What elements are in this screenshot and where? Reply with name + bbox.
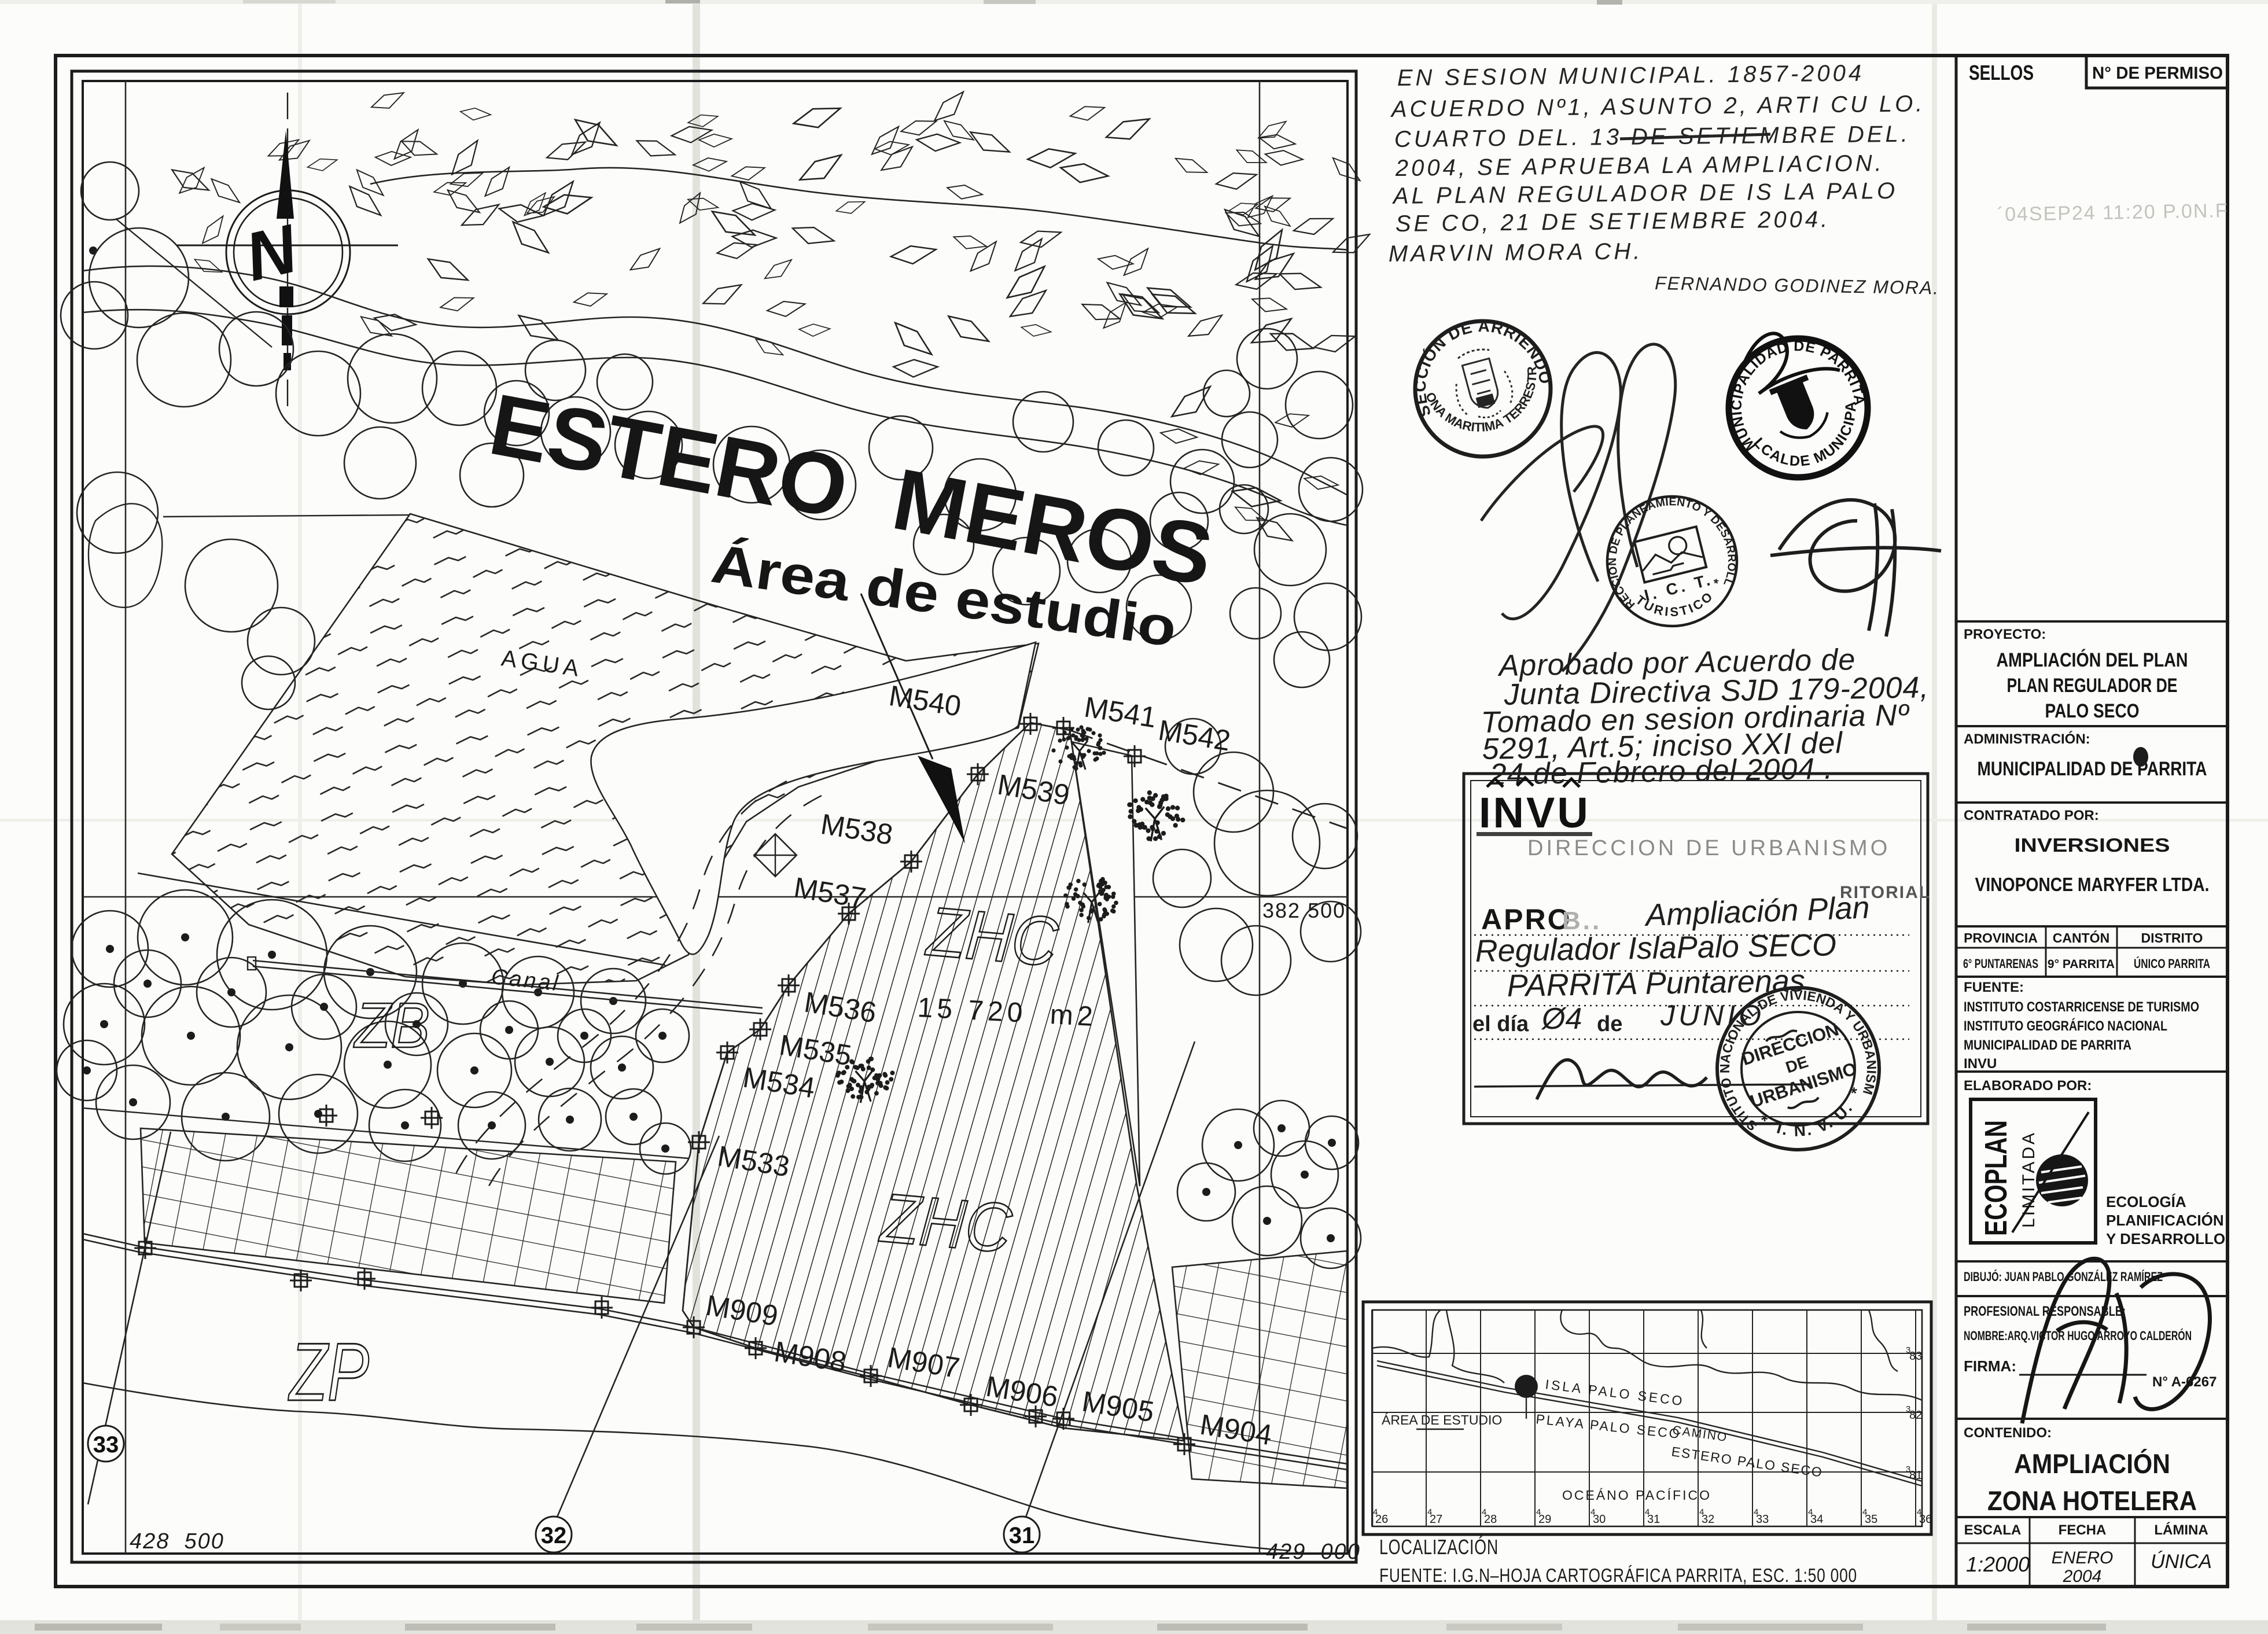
svg-text:ENERO: ENERO [2052, 1548, 2114, 1567]
svg-text:DIRECCION DE URBANISMO: DIRECCION DE URBANISMO [1527, 836, 1890, 860]
svg-text:ZHC: ZHC [923, 892, 1062, 981]
svg-text:FECHA: FECHA [2059, 1522, 2107, 1538]
svg-text:ADMINISTRACIÓN:: ADMINISTRACIÓN: [1964, 731, 2090, 747]
svg-text:AMPLIACIÓN: AMPLIACIÓN [2014, 1448, 2170, 1479]
svg-text:ZONA HOTELERA: ZONA HOTELERA [1987, 1485, 2197, 1516]
svg-text:AL PLAN REGULADOR DE IS LA PAL: AL PLAN REGULADOR DE IS LA PALO [1392, 178, 1898, 209]
svg-text:ÚNICO PARRITA: ÚNICO PARRITA [2134, 956, 2210, 971]
svg-text:428 500: 428 500 [130, 1529, 224, 1554]
svg-text:31: 31 [1009, 1523, 1035, 1548]
svg-text:4: 4 [1754, 1507, 1758, 1517]
svg-text:INSTITUTO COSTARRICENSE DE TUR: INSTITUTO COSTARRICENSE DE TURISMO [1964, 999, 2199, 1015]
svg-text:ZB: ZB [353, 990, 430, 1061]
svg-text:MUNICIPALIDAD DE PARRITA: MUNICIPALIDAD DE PARRITA [1978, 758, 2207, 780]
svg-text:3: 3 [1906, 1464, 1910, 1474]
svg-text:´04SEP24 11:20 P.0N.F: ´04SEP24 11:20 P.0N.F [1997, 200, 2228, 226]
svg-text:24 de Febrero del 2004 .: 24 de Febrero del 2004 . [1489, 752, 1833, 792]
svg-text:4: 4 [1482, 1507, 1486, 1517]
svg-text:3: 3 [1906, 1345, 1910, 1355]
svg-text:de: de [1597, 1012, 1622, 1036]
svg-text:82: 82 [1909, 1409, 1922, 1422]
svg-text:4: 4 [1917, 1507, 1921, 1517]
svg-text:LOCALIZACIÓN: LOCALIZACIÓN [1379, 1535, 1499, 1559]
svg-text:ZHC: ZHC [877, 1179, 1015, 1267]
svg-text:4: 4 [1590, 1507, 1595, 1517]
svg-text:9° PARRITA: 9° PARRITA [2048, 958, 2115, 971]
svg-text:4: 4 [1862, 1507, 1867, 1517]
svg-text:Y DESARROLLO: Y DESARROLLO [2106, 1230, 2225, 1247]
svg-text:APRO: APRO [1481, 903, 1571, 936]
svg-text:CONTENIDO:: CONTENIDO: [1964, 1425, 2052, 1441]
svg-text:ELABORADO POR:: ELABORADO POR: [1964, 1078, 2092, 1094]
svg-text:CONTRATADO POR:: CONTRATADO POR: [1964, 808, 2099, 823]
svg-text:OCEÁNO PACÍFICO: OCEÁNO PACÍFICO [1562, 1488, 1711, 1503]
svg-text:83: 83 [1909, 1350, 1922, 1363]
svg-text:FUENTE:: FUENTE: [1964, 980, 2024, 995]
svg-text:Ø4: Ø4 [1541, 1002, 1582, 1036]
svg-text:FIRMA:: FIRMA: [1964, 1357, 2016, 1375]
svg-text:EN SESION MUNICIPAL. 1857-2004: EN SESION MUNICIPAL. 1857-2004 [1397, 61, 1865, 91]
svg-text:2004, SE APRUEBA LA AMPLIACION: 2004, SE APRUEBA LA AMPLIACION. [1395, 150, 1884, 181]
svg-text:el día: el día [1472, 1012, 1529, 1036]
svg-text:429 000: 429 000 [1266, 1540, 1361, 1564]
svg-text:SELLOS: SELLOS [1969, 61, 2034, 84]
svg-text:6° PUNTARENAS: 6° PUNTARENAS [1963, 956, 2038, 971]
svg-text:ÚNICA: ÚNICA [2151, 1551, 2212, 1573]
svg-text:PROYECTO:: PROYECTO: [1964, 627, 2046, 642]
svg-text:PLANIFICACIÓN: PLANIFICACIÓN [2106, 1212, 2224, 1229]
svg-text:PALO SECO: PALO SECO [2045, 700, 2140, 722]
svg-text:ZP: ZP [288, 1326, 369, 1418]
svg-text:INVERSIONES: INVERSIONES [2015, 834, 2170, 856]
svg-text:1:2000: 1:2000 [1966, 1552, 2030, 1576]
svg-text:ÁREA DE ESTUDIO: ÁREA DE ESTUDIO [1382, 1412, 1502, 1427]
svg-text:Regulador IslaPalo SECO: Regulador IslaPalo SECO [1475, 928, 1836, 969]
svg-text:N° DE PERMISO: N° DE PERMISO [2092, 64, 2223, 83]
svg-text:LÁMINA: LÁMINA [2154, 1522, 2208, 1538]
svg-text:CANTÓN: CANTÓN [2053, 930, 2109, 945]
svg-text:NOMBRE:ARQ.VICTOR HUGO ARROYO: NOMBRE:ARQ.VICTOR HUGO ARROYO CALDERÓN [1964, 1328, 2192, 1343]
svg-text:2004: 2004 [2063, 1567, 2102, 1586]
svg-text:4: 4 [1645, 1507, 1650, 1517]
svg-text:VINOPONCE MARYFER LTDA.: VINOPONCE MARYFER LTDA. [1975, 874, 2210, 895]
svg-text:INSTITUTO GEOGRÁFICO NACIONAL: INSTITUTO GEOGRÁFICO NACIONAL [1964, 1018, 2167, 1034]
svg-text:PLAN REGULADOR DE: PLAN REGULADOR DE [2007, 675, 2178, 697]
svg-text:SE CO, 21 DE SETIEMBRE 2004.: SE CO, 21 DE SETIEMBRE 2004. [1396, 207, 1831, 237]
svg-text:32: 32 [541, 1523, 567, 1548]
svg-text:INVU: INVU [1964, 1056, 1997, 1072]
svg-text:B..: B.. [1562, 907, 1601, 935]
svg-text:3: 3 [1906, 1404, 1910, 1414]
svg-text:ESCALA: ESCALA [1964, 1522, 2022, 1538]
svg-text:FUENTE: I.G.N–HOJA CARTOGRÁFIC: FUENTE: I.G.N–HOJA CARTOGRÁFICA PARRITA,… [1379, 1565, 1857, 1586]
svg-text:MUNICIPALIDAD DE PARRITA: MUNICIPALIDAD DE PARRITA [1964, 1037, 2131, 1053]
svg-text:LIMITADA: LIMITADA [2019, 1131, 2038, 1228]
svg-text:AMPLIACIÓN DEL PLAN: AMPLIACIÓN DEL PLAN [1997, 649, 2188, 671]
svg-text:4: 4 [1427, 1507, 1432, 1517]
svg-text:4: 4 [1699, 1507, 1704, 1517]
svg-text:PROVINCIA: PROVINCIA [1964, 930, 2038, 945]
svg-text:INVU: INVU [1479, 789, 1590, 837]
svg-text:ECOLOGÍA: ECOLOGÍA [2106, 1193, 2186, 1210]
svg-text:MARVIN MORA CH.: MARVIN MORA CH. [1389, 238, 1643, 267]
svg-text:33: 33 [93, 1432, 119, 1458]
svg-text:ECOPLAN: ECOPLAN [1979, 1120, 2013, 1236]
svg-text:4: 4 [1536, 1507, 1541, 1517]
svg-text:DISTRITO: DISTRITO [2141, 930, 2203, 945]
svg-text:4: 4 [1808, 1507, 1813, 1517]
svg-text:4: 4 [1373, 1507, 1378, 1517]
